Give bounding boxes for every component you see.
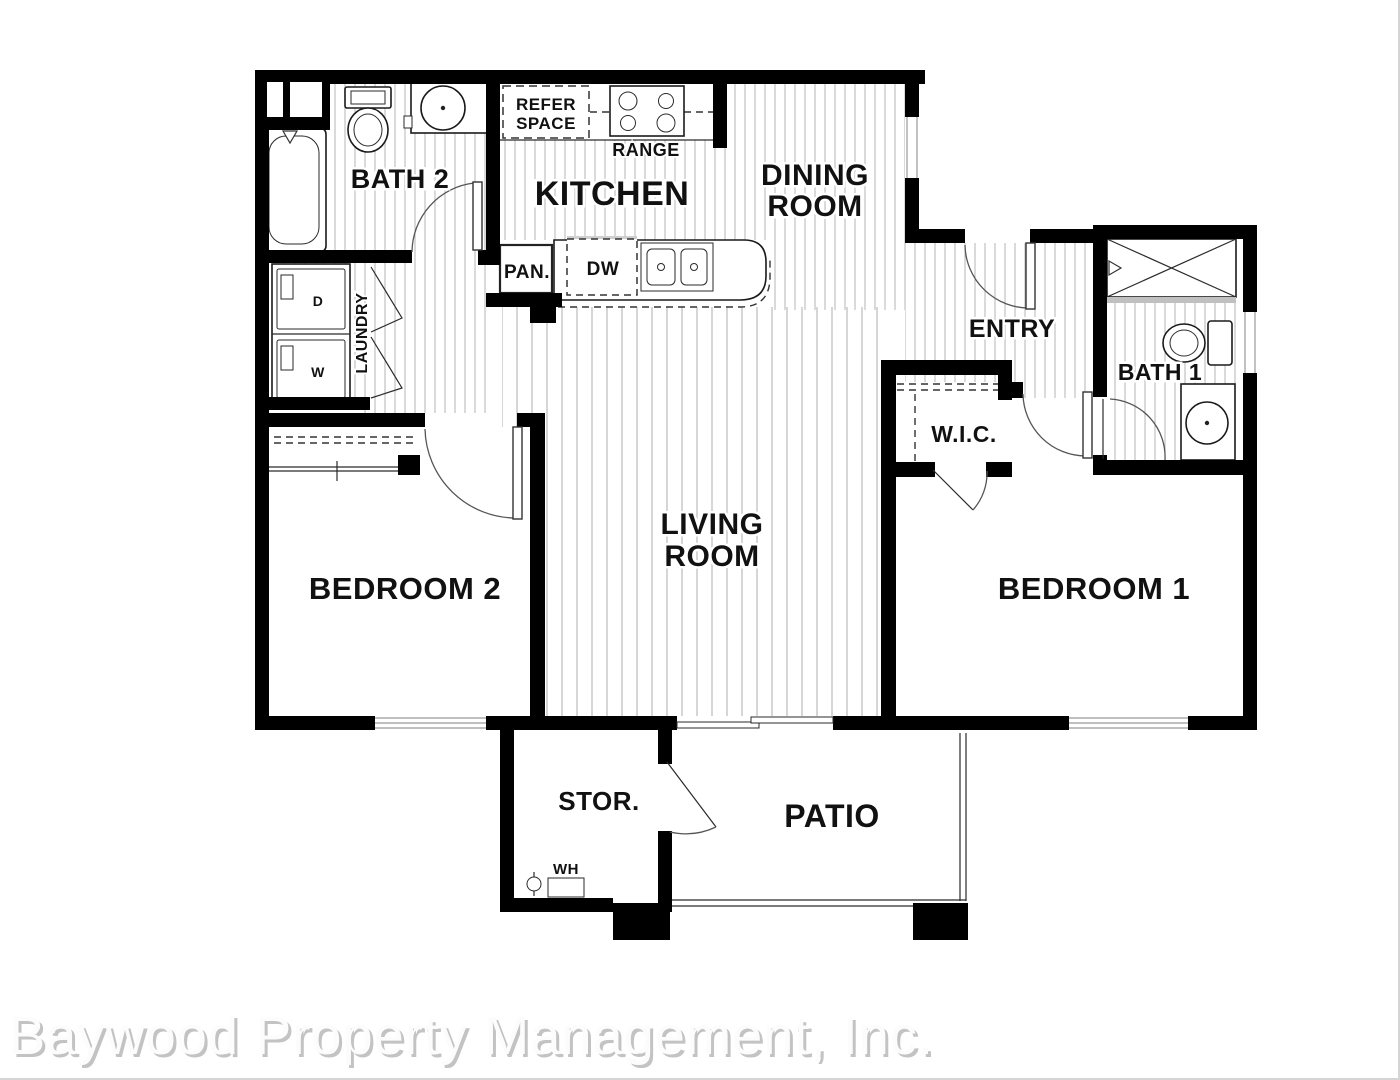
- room-label-bedroom2: BEDROOM 2: [309, 571, 501, 606]
- shower-icon: [1107, 239, 1236, 303]
- door-wic: [933, 470, 987, 510]
- room-label-dining-1: DINING: [761, 159, 869, 192]
- room-label-kitchen: KITCHEN: [535, 175, 690, 213]
- pantry: PAN.: [500, 245, 552, 293]
- storage-fixtures: WH: [527, 861, 584, 897]
- room-label-wic: W.I.C.: [931, 421, 997, 447]
- dishwasher-label: DW: [587, 259, 620, 280]
- water-heater-label: WH: [553, 861, 579, 878]
- room-label-bedroom1: BEDROOM 1: [998, 571, 1190, 606]
- pipe-symbol-icon: [527, 872, 541, 896]
- door-bedroom1: [1023, 392, 1092, 458]
- range-icon: [610, 86, 684, 136]
- watermark-text: Baywood Property Management, Inc.: [9, 1006, 934, 1066]
- bedroom2-closet-details: [262, 437, 413, 481]
- range-label: RANGE: [612, 140, 680, 160]
- refrigerator-space: REFER SPACE: [503, 86, 589, 138]
- dryer-label: D: [313, 293, 324, 309]
- refer-label-2: SPACE: [516, 114, 576, 133]
- patio-pillar-right: [913, 903, 968, 940]
- room-label-dining-2: ROOM: [767, 190, 862, 223]
- room-label-bath2: BATH 2: [351, 164, 450, 194]
- kitchen-sink-icon: [641, 243, 713, 291]
- refer-label-1: REFER: [516, 95, 576, 114]
- room-label-storage: STOR.: [558, 786, 639, 816]
- vanity-sink-icon-bath1: [1181, 384, 1235, 460]
- window-bath2-top: [267, 82, 322, 117]
- window-dining: [905, 117, 919, 178]
- floor-plan: REFER SPACE RANGE PAN. DW: [0, 0, 1400, 1080]
- washer-label: W: [311, 364, 325, 380]
- sliding-glass-door: [677, 716, 833, 730]
- room-label-living-2: ROOM: [664, 540, 759, 573]
- door-bedroom2: [425, 427, 522, 519]
- room-label-bath1: BATH 1: [1118, 359, 1202, 385]
- room-label-living-1: LIVING: [660, 508, 763, 541]
- patio-pillar-left: [613, 903, 670, 940]
- window-bedroom2: [375, 716, 486, 730]
- dishwasher: DW: [567, 239, 637, 295]
- door-storage: [667, 762, 716, 834]
- window-bedroom1: [1069, 716, 1188, 730]
- toilet-icon-bath2: [345, 87, 391, 152]
- window-bath1: [1243, 312, 1257, 373]
- floor-plan-page: REFER SPACE RANGE PAN. DW: [0, 0, 1400, 1080]
- pantry-label: PAN.: [504, 262, 550, 283]
- sink-icon-bath2: [404, 83, 487, 133]
- room-label-entry: ENTRY: [969, 315, 1055, 343]
- laundry-label: LAUNDRY: [354, 292, 371, 373]
- watermark: Baywood Property Management, Inc. Baywoo…: [9, 1006, 937, 1069]
- bathtub-icon: [262, 128, 326, 252]
- room-label-patio: PATIO: [784, 798, 880, 834]
